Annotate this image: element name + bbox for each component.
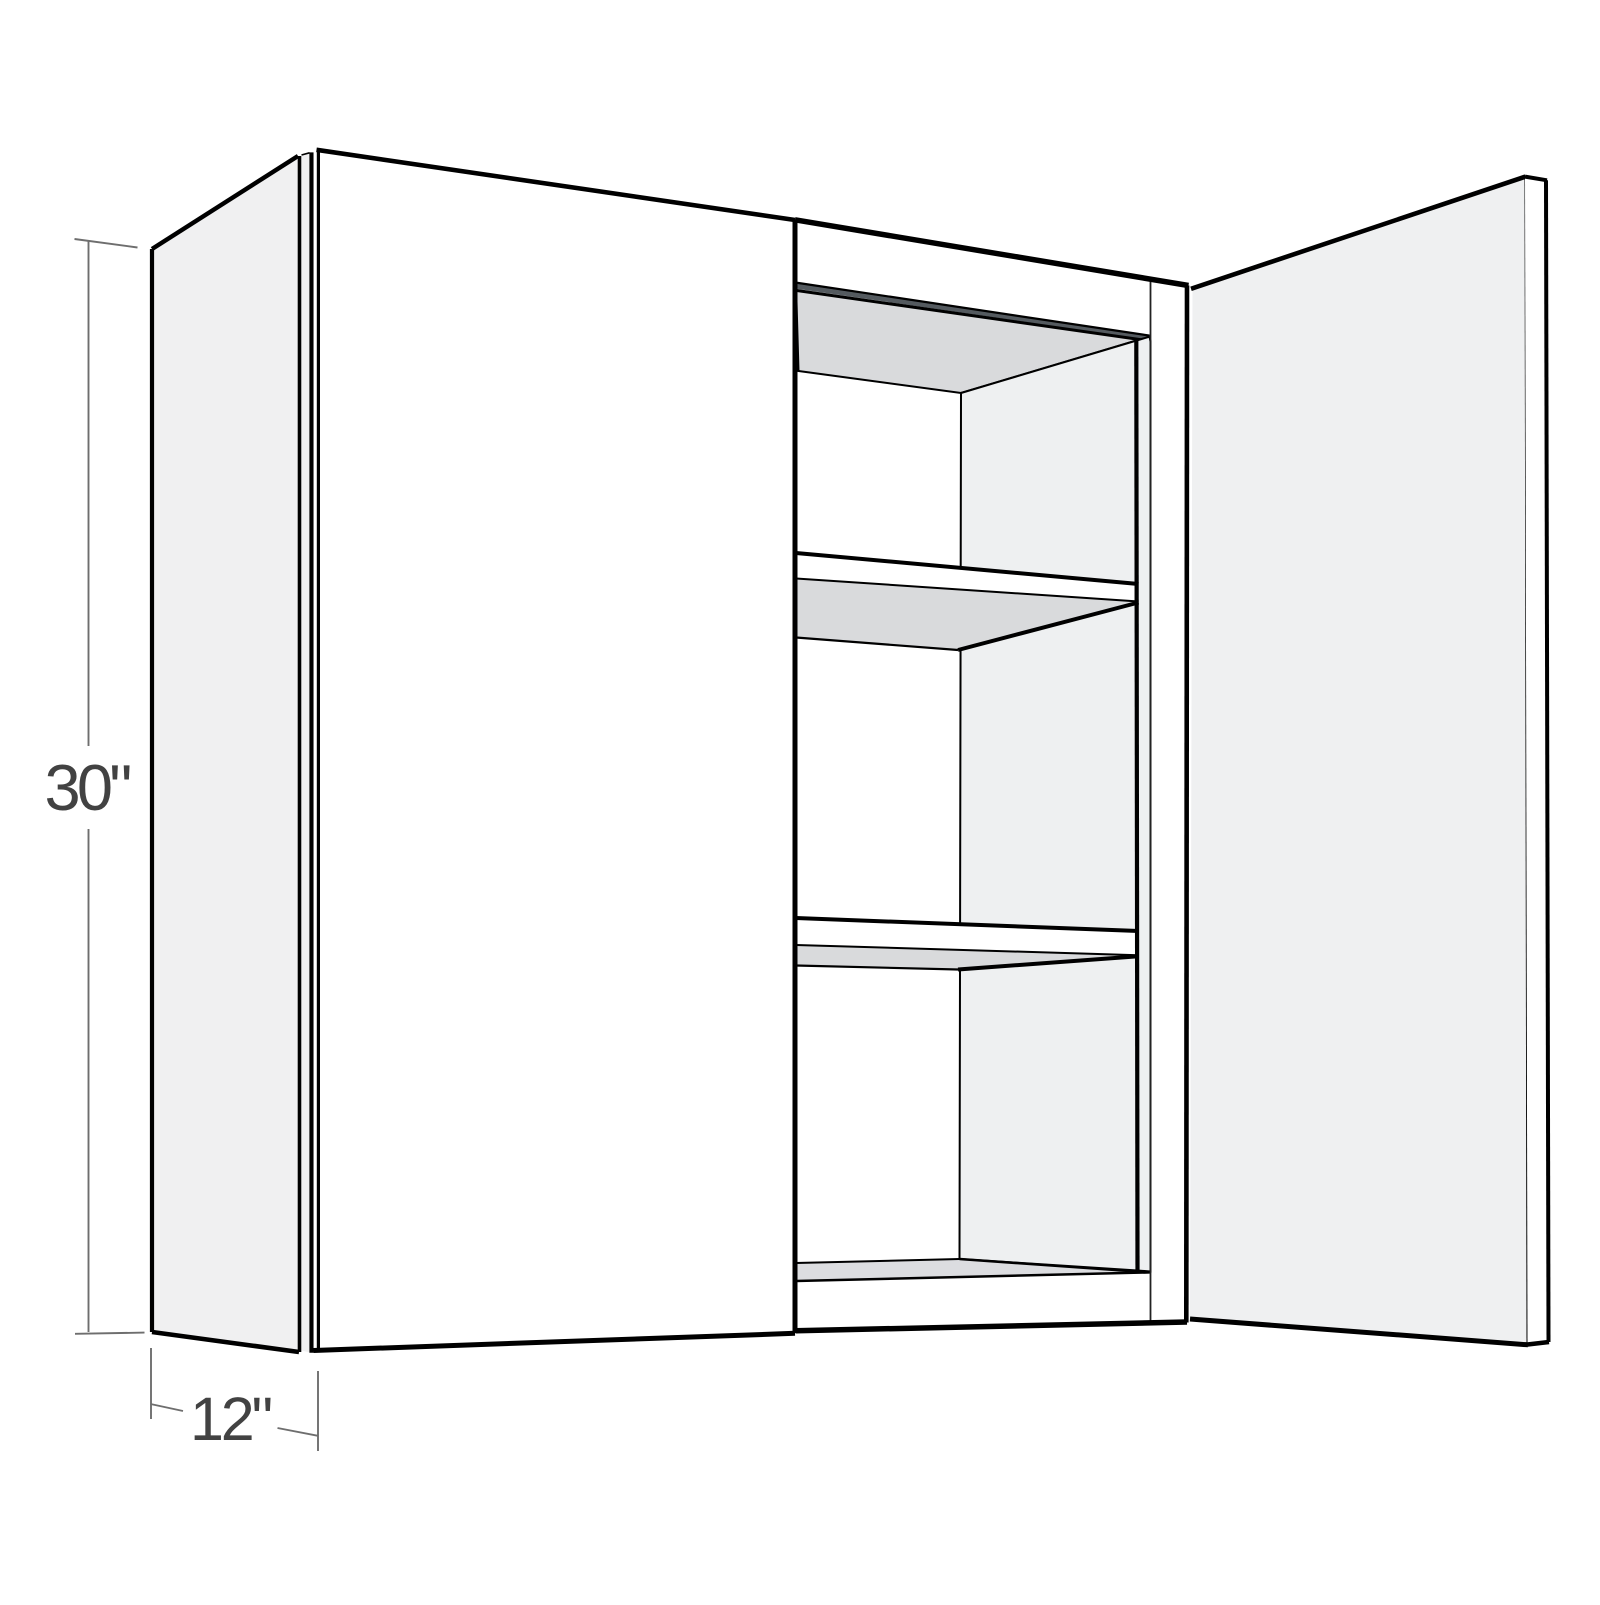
svg-text:12": 12" [190,1385,271,1453]
svg-text:30": 30" [45,751,131,824]
